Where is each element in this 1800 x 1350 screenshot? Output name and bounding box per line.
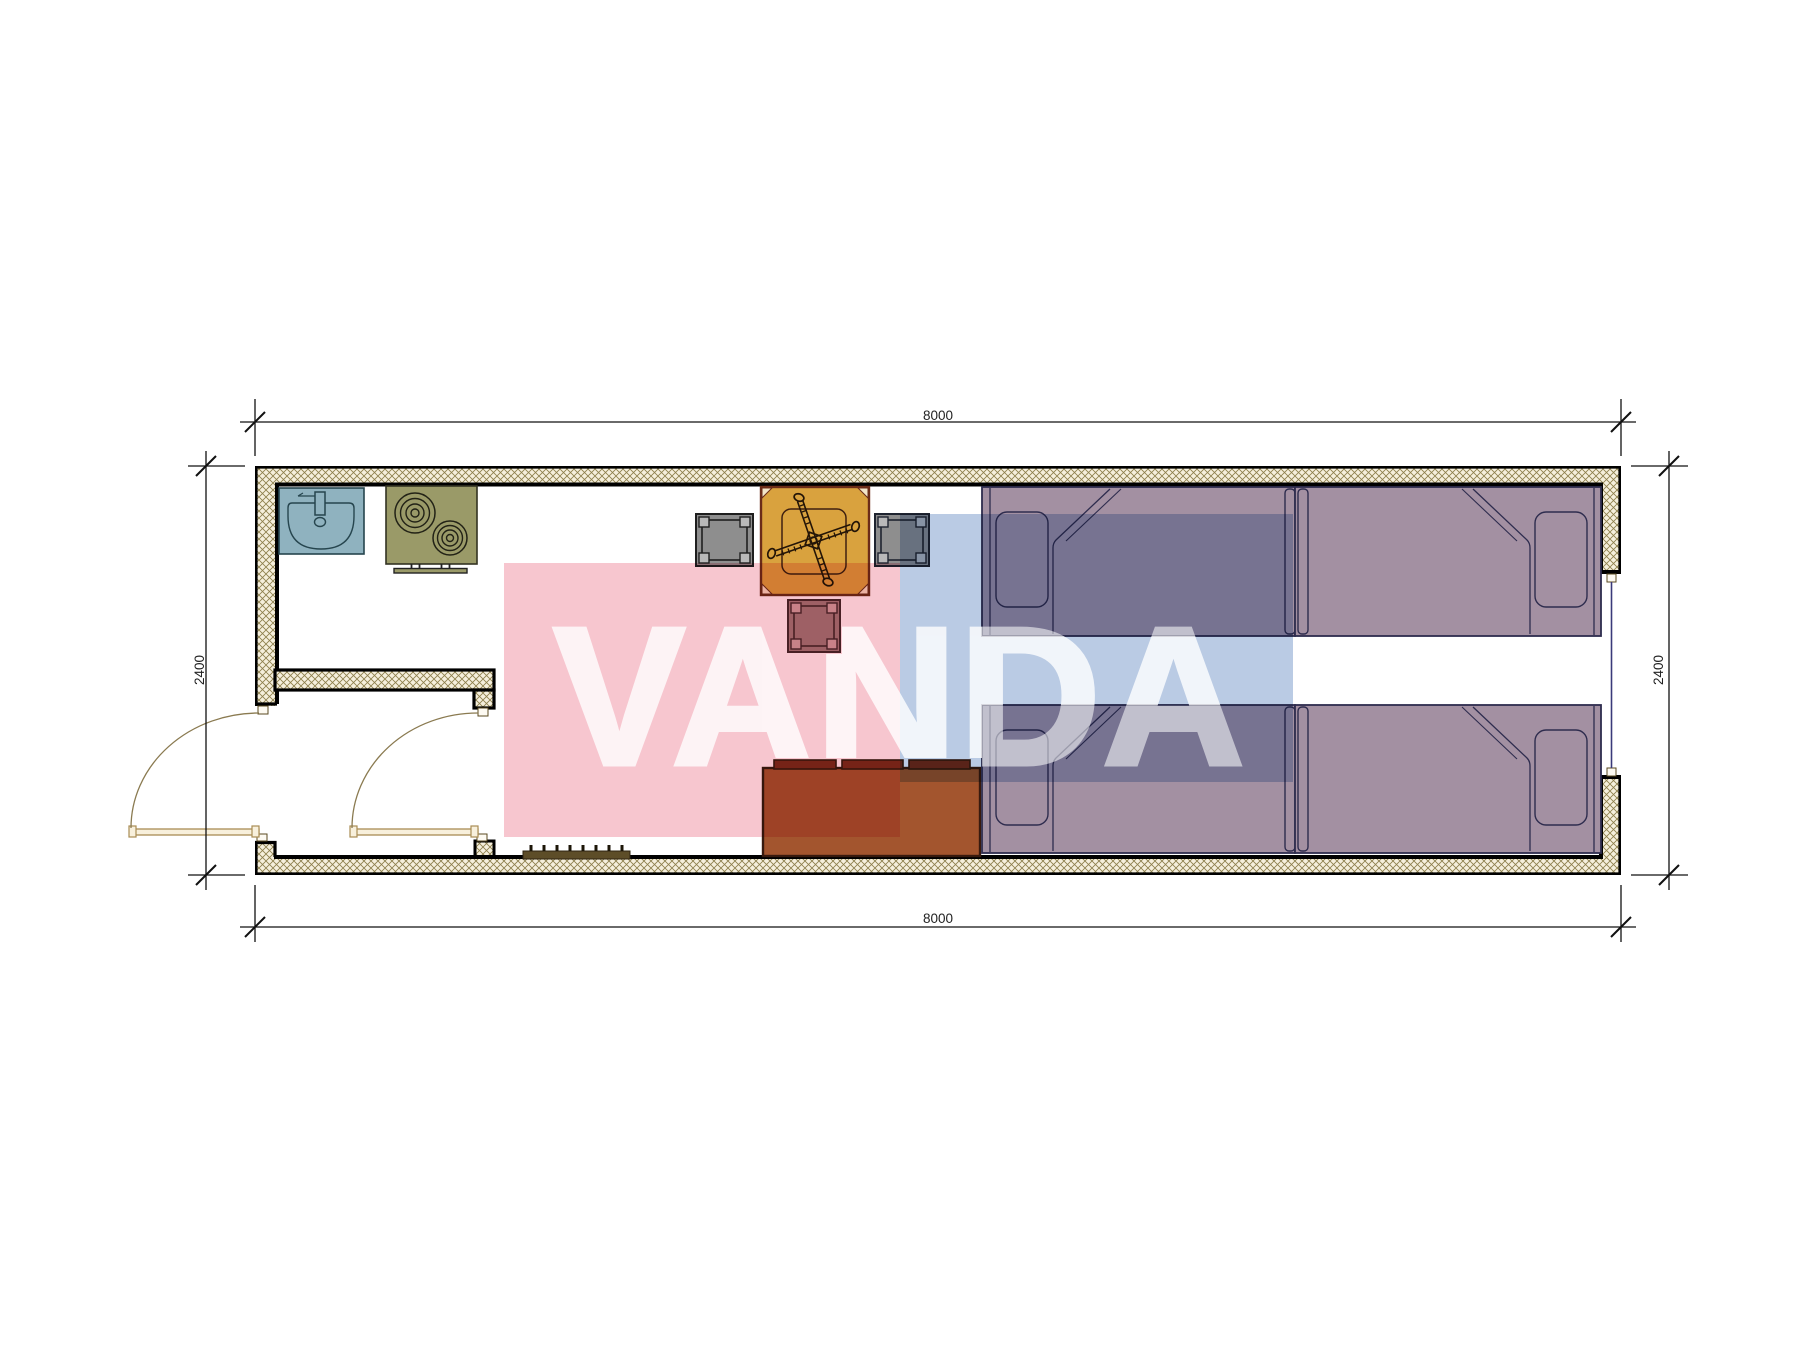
svg-text:8000: 8000 — [923, 911, 953, 926]
svg-text:8000: 8000 — [923, 408, 953, 423]
svg-text:2400: 2400 — [1651, 655, 1666, 685]
svg-text:2400: 2400 — [192, 655, 207, 685]
